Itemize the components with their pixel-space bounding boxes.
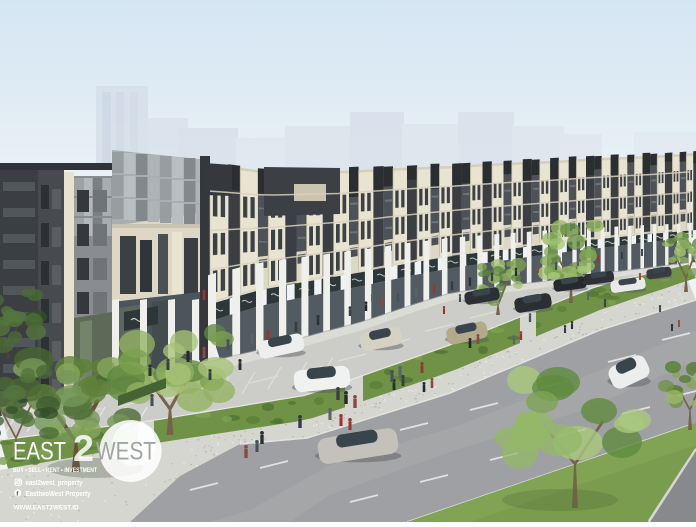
svg-text:WEST: WEST (96, 438, 156, 466)
svg-text:east2west_property: east2west_property (26, 478, 83, 487)
svg-text:WWW.EAST2WEST.ID: WWW.EAST2WEST.ID (14, 505, 79, 512)
svg-text:BUY • SELL • RENT • INVESTMENT: BUY • SELL • RENT • INVESTMENT (13, 467, 97, 474)
svg-text:2: 2 (73, 428, 94, 469)
svg-text:EAST: EAST (13, 438, 66, 466)
svg-text:EasttwoWest Property: EasttwoWest Property (26, 489, 91, 498)
